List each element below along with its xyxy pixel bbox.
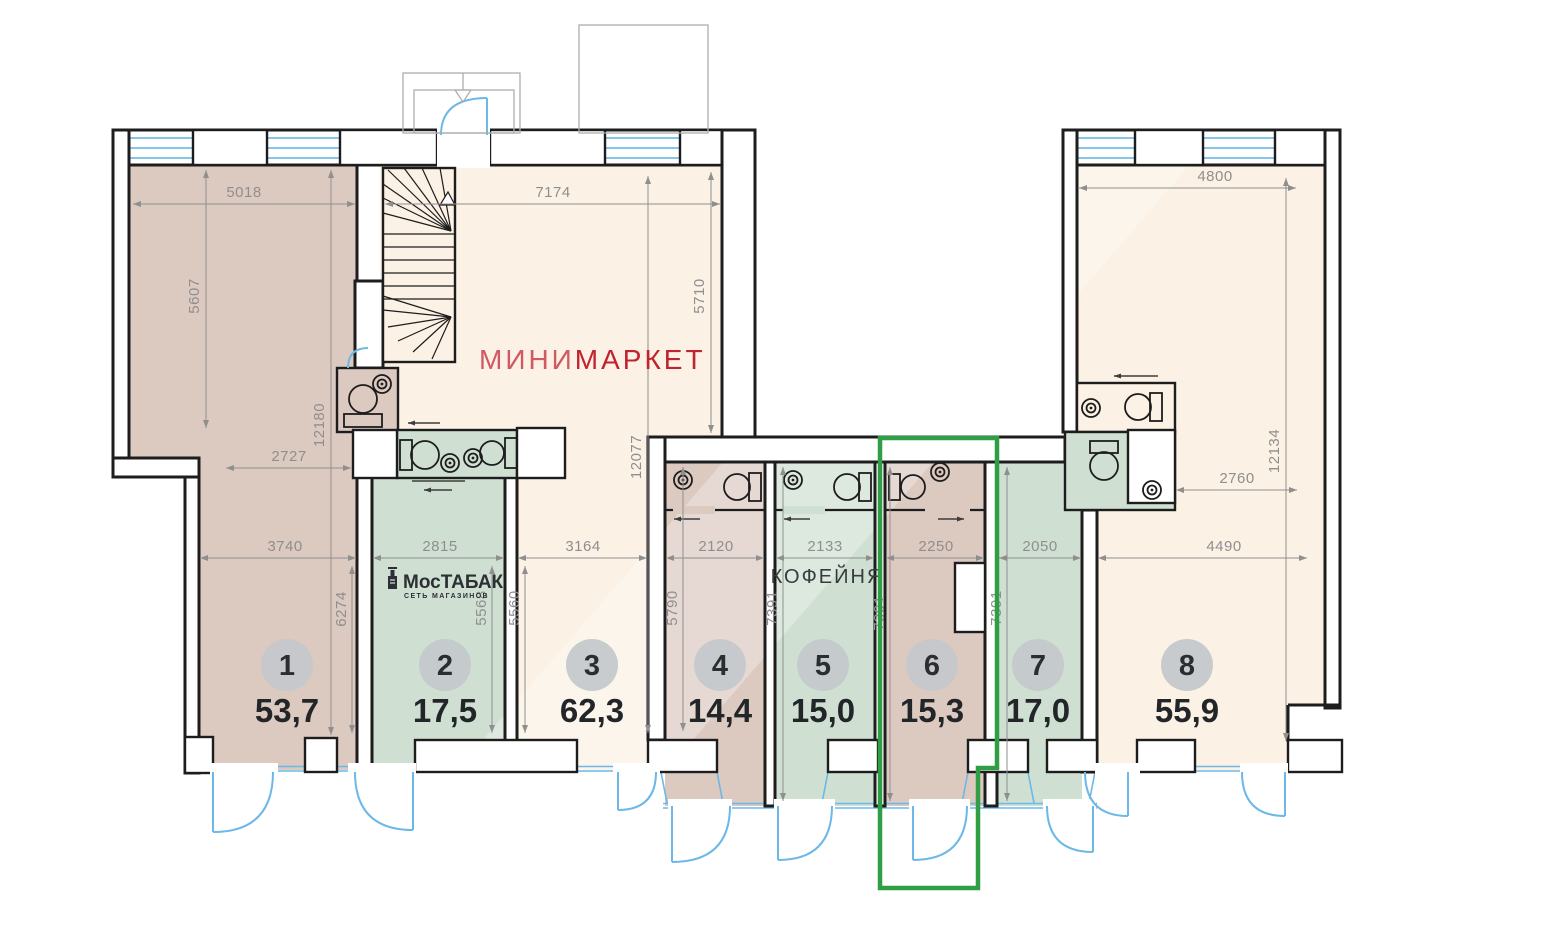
svg-text:2: 2	[437, 650, 453, 682]
right-wing-left-wall	[1063, 130, 1077, 432]
dim-label: 7174	[535, 184, 570, 201]
stair-lobby	[355, 281, 383, 368]
dim-label: 5560	[506, 590, 523, 625]
dim-label: 12180	[311, 403, 328, 447]
svg-text:5: 5	[815, 650, 831, 682]
divider-3-4	[648, 437, 665, 740]
coffee-shop-label: КОФЕЙНЯ	[771, 564, 884, 588]
dim-label: 2250	[918, 538, 953, 555]
unit-area: 15,3	[900, 692, 964, 729]
unit-area: 53,7	[255, 692, 319, 729]
dim-label: 2760	[1219, 470, 1254, 487]
divider-1-2	[357, 430, 372, 770]
minimarket-right-wall	[722, 130, 755, 437]
dim-label: 12134	[1266, 429, 1283, 473]
divider-4-5	[765, 462, 775, 806]
entrance-arrow-icon	[455, 73, 471, 102]
svg-text:8: 8	[1179, 650, 1195, 682]
top-structures	[403, 25, 708, 133]
unit-area: 62,3	[560, 692, 624, 729]
dim-label: 5710	[691, 278, 708, 313]
dim-label: 4800	[1197, 168, 1232, 185]
mostabak-logo: МосТАБАК СЕТЬ МАГАЗИНОВ	[388, 568, 504, 600]
dim-label: 2815	[422, 538, 457, 555]
unit-area: 17,5	[413, 692, 477, 729]
stairs	[383, 168, 455, 362]
dim-label: 2727	[271, 448, 306, 465]
dim-label: 12077	[628, 435, 645, 479]
mostabak-name: МосТАБАК	[403, 572, 504, 593]
minimarket-label: МИНИМАРКЕТ	[479, 344, 706, 375]
floor-plan: 5018 7174 4800 5607 12180 5710 12077 121…	[0, 0, 1542, 940]
mostabak-subtitle: СЕТЬ МАГАЗИНОВ	[404, 593, 489, 600]
unit-area: 17,0	[1006, 692, 1070, 729]
dim-label: 6274	[333, 591, 350, 626]
porch-inner-outline	[414, 90, 514, 133]
dim-label: 5790	[664, 590, 681, 625]
divider-7-8	[1082, 510, 1097, 772]
dim-label: 2120	[698, 538, 733, 555]
dim-label: 3740	[267, 538, 302, 555]
svg-text:4: 4	[712, 650, 728, 682]
svg-text:7: 7	[1030, 650, 1046, 682]
dim-label: 5018	[226, 184, 261, 201]
unit-area: 15,0	[791, 692, 855, 729]
mid-strip-top-wall	[660, 437, 1065, 462]
dim-label: 7391	[764, 590, 781, 625]
floor-plan-page: 5018 7174 4800 5607 12180 5710 12077 121…	[0, 0, 1542, 940]
wc-unit-2	[397, 430, 517, 478]
dim-label: 3164	[565, 538, 600, 555]
dim-label: 4490	[1206, 538, 1241, 555]
svg-text:6: 6	[924, 650, 940, 682]
dim-label: 2050	[1022, 538, 1057, 555]
unit-area: 55,9	[1155, 692, 1219, 729]
svg-text:3: 3	[584, 650, 600, 682]
dim-label: 2133	[807, 538, 842, 555]
dim-label: 5607	[186, 278, 203, 313]
svg-text:1: 1	[279, 650, 295, 682]
roof-structure-outline	[579, 25, 708, 133]
unit-6-shaft	[955, 563, 985, 632]
unit-area: 14,4	[688, 692, 753, 729]
